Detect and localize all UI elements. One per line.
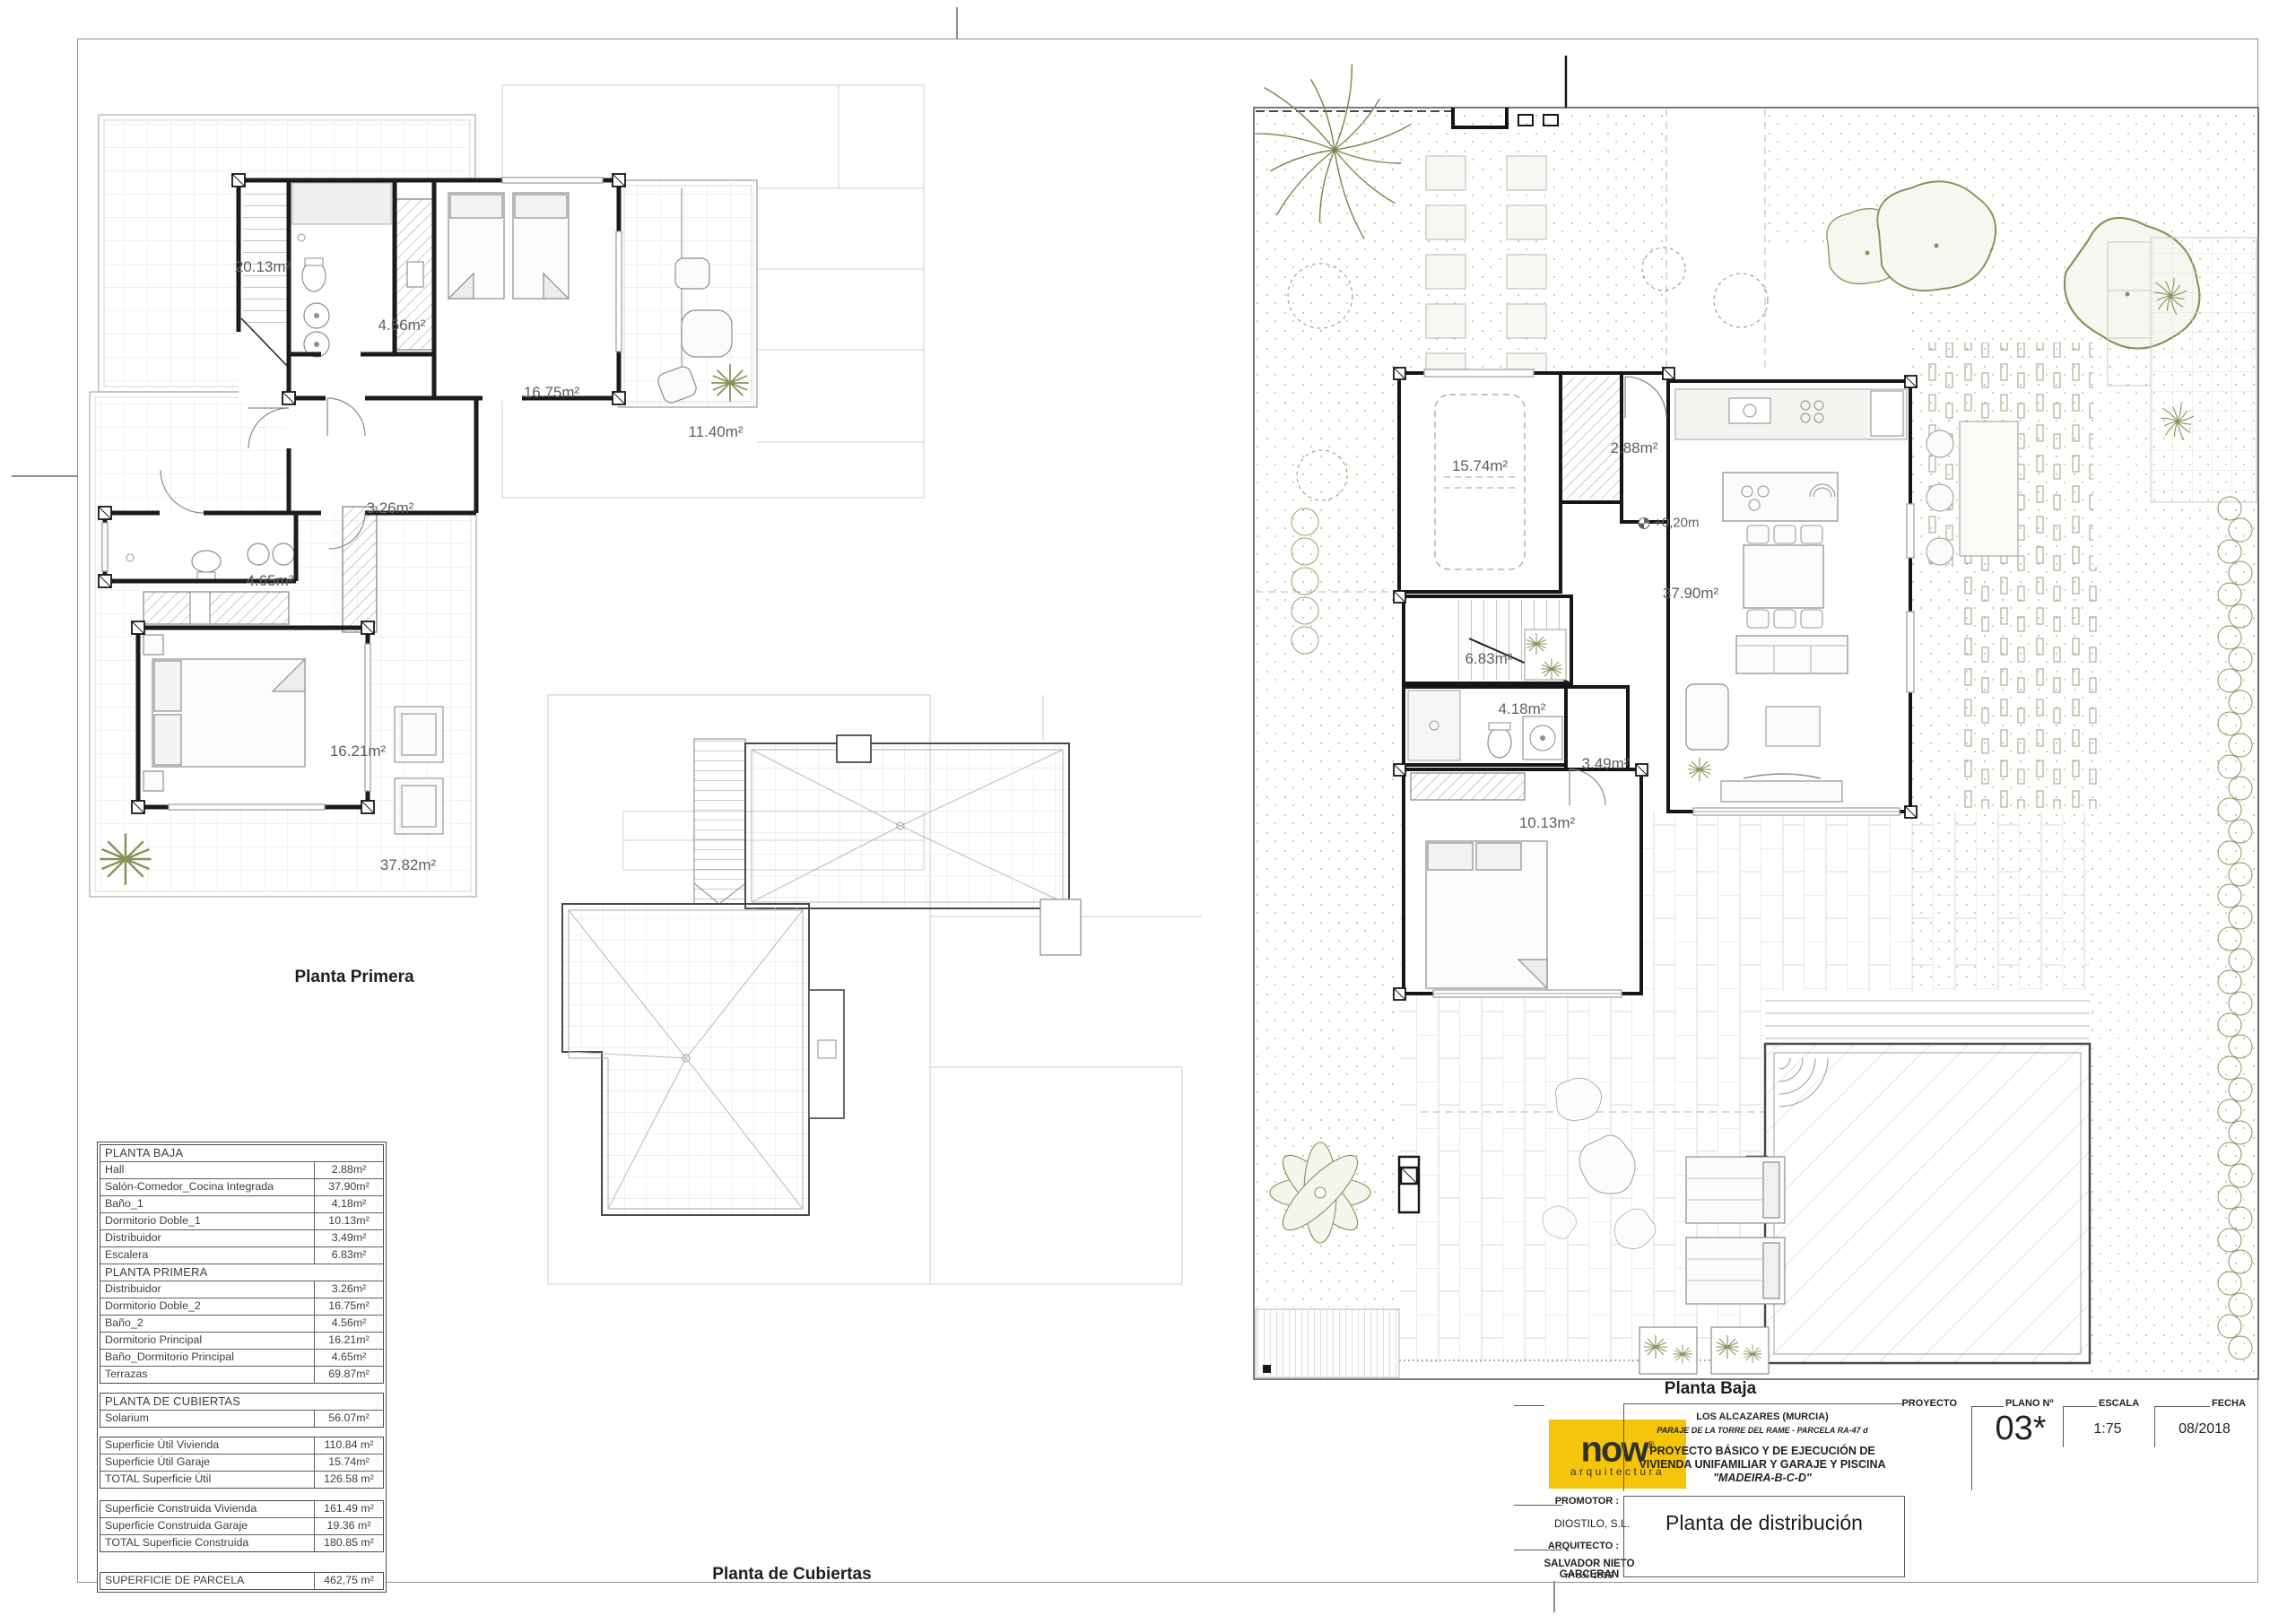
table-row: Dormitorio Doble_216.75m² <box>100 1298 383 1315</box>
promotor-value: DIOSTILO, S.L. <box>1554 1517 1630 1530</box>
table-cell-label: Baño_2 <box>100 1316 314 1332</box>
table-cell-label: Superficie Útil Vivienda <box>100 1437 314 1454</box>
table-cell-label: TOTAL Superficie Útil <box>100 1472 314 1488</box>
proyecto-label: PROYECTO <box>1896 1398 1957 1409</box>
caption-planta-cubiertas: Planta de Cubiertas <box>712 1565 871 1585</box>
area-label: 37.82m² <box>380 856 436 874</box>
area-label: 16.21m² <box>330 743 386 760</box>
arquitecto-label: ARQUITECTO : <box>1516 1541 1619 1551</box>
area-label: 16.75m² <box>524 384 579 402</box>
area-label: 15.74m² <box>1452 457 1508 475</box>
table-cell-value: 462,75 m² <box>314 1573 383 1589</box>
table-cell-value: 2.88m² <box>314 1162 383 1178</box>
promotor-label: PROMOTOR : <box>1516 1496 1619 1507</box>
table-row: Superficie Útil Garaje15.74m² <box>100 1454 383 1471</box>
escala-value: 1:75 <box>2067 1421 2148 1437</box>
table-cell-value: 3.49m² <box>314 1230 383 1246</box>
titleblock-line <box>1623 1403 1624 1491</box>
area-label: 10.13m² <box>1519 814 1575 832</box>
caption-planta-baja: Planta Baja <box>1665 1379 1756 1399</box>
table-cell-value: 126.58 m² <box>314 1472 383 1488</box>
table-cell-value: 6.83m² <box>314 1247 383 1264</box>
area-label: 4.56m² <box>378 317 426 334</box>
table-section-header: PLANTA PRIMERA <box>100 1264 383 1281</box>
table-row: Distribuidor3.49m² <box>100 1229 383 1246</box>
drawing-title: Planta de distribución <box>1624 1511 1904 1535</box>
drawing-title-box: Planta de distribución <box>1623 1496 1905 1577</box>
escala-label: ESCALA <box>2099 1398 2139 1409</box>
area-label: 11.40m² <box>688 423 743 441</box>
area-label: 20.13m² <box>235 258 291 276</box>
table-row: Superficie Útil Vivienda110.84 m² <box>100 1437 383 1454</box>
fold-mark-bottom <box>1553 1581 1555 1612</box>
table-cell-label: Superficie Útil Garaje <box>100 1455 314 1471</box>
table-cell-value: 3.26m² <box>314 1281 383 1298</box>
table-row: TOTAL Superficie Útil126.58 m² <box>100 1471 383 1488</box>
table-cell-label: Hall <box>100 1162 314 1178</box>
table-row: Distribuidor3.26m² <box>100 1281 383 1298</box>
table-cell-label: Distribuidor <box>100 1281 314 1298</box>
titleblock-line <box>1514 1405 1544 1406</box>
area-label: 4.18m² <box>1499 700 1546 718</box>
table-row: SUPERFICIE DE PARCELA462,75 m² <box>100 1573 383 1589</box>
table-box: SUPERFICIE DE PARCELA462,75 m² <box>100 1572 384 1590</box>
titleblock-line <box>1971 1406 1972 1490</box>
fold-mark-top <box>956 7 958 39</box>
table-cell-value: 10.13m² <box>314 1213 383 1229</box>
titleblock-line <box>1971 1406 2004 1407</box>
table-cell-value: 19.36 m² <box>314 1518 383 1534</box>
table-row: TOTAL Superficie Construida180.85 m² <box>100 1534 383 1551</box>
titleblock-line <box>2063 1406 2064 1447</box>
plano-label: PLANO Nº <box>2005 1398 2054 1409</box>
table-row: Baño_24.56m² <box>100 1315 383 1332</box>
area-label: 3.49m² <box>1582 755 1630 773</box>
table-box: PLANTA DE CUBIERTASSolarium56.07m² <box>100 1393 384 1428</box>
area-label: 3.26m² <box>367 499 414 517</box>
titleblock-line <box>1623 1403 1903 1404</box>
location-line1: LOS ALCAZARES (MURCIA) <box>1628 1411 1897 1424</box>
area-label: 6.83m² <box>1465 650 1513 668</box>
table-cell-label: Escalera <box>100 1247 314 1264</box>
drawing-sheet: 20.13m² 4.56m² 16.75m² 11.40m² 3.26m² 4.… <box>0 0 2296 1624</box>
table-section-header: PLANTA DE CUBIERTAS <box>100 1394 383 1410</box>
table-cell-label: Dormitorio Principal <box>100 1333 314 1349</box>
table-box: Superficie Útil Vivienda110.84 m²Superfi… <box>100 1437 384 1489</box>
planta-cubiertas-drawing <box>538 682 1202 1507</box>
table-row: Baño_Dormitorio Principal4.65m² <box>100 1349 383 1366</box>
titleblock-line <box>2154 1406 2155 1447</box>
location-line2: PARAJE DE LA TORRE DEL RAME - PARCELA RA… <box>1628 1424 1897 1437</box>
table-cell-label: TOTAL Superficie Construida <box>100 1535 314 1551</box>
fecha-label: FECHA <box>2212 1398 2246 1409</box>
table-box: PLANTA BAJAHall2.88m²Salón-Comedor_Cocin… <box>100 1144 384 1384</box>
table-row: Dormitorio Doble_110.13m² <box>100 1212 383 1229</box>
area-label: 2.88m² <box>1611 439 1658 457</box>
table-cell-label: Salón-Comedor_Cocina Integrada <box>100 1179 314 1195</box>
caption-planta-primera: Planta Primera <box>294 968 413 987</box>
table-row: Hall2.88m² <box>100 1161 383 1178</box>
table-row: Superficie Construida Garaje19.36 m² <box>100 1517 383 1534</box>
table-cell-value: 16.75m² <box>314 1298 383 1315</box>
table-cell-value: 110.84 m² <box>314 1437 383 1454</box>
area-label: 37.90m² <box>1663 585 1718 603</box>
table-row: Solarium56.07m² <box>100 1410 383 1427</box>
table-cell-value: 16.21m² <box>314 1333 383 1349</box>
table-cell-label: Dormitorio Doble_1 <box>100 1213 314 1229</box>
table-cell-label: Superficie Construida Garaje <box>100 1518 314 1534</box>
table-row: Superficie Construida Vivienda161.49 m² <box>100 1501 383 1517</box>
fecha-value: 08/2018 <box>2160 1421 2249 1437</box>
project-line3: "MADEIRA-B-C-D" <box>1628 1472 1897 1485</box>
table-cell-value: 69.87m² <box>314 1367 383 1383</box>
table-cell-label: Terrazas <box>100 1367 314 1383</box>
table-cell-value: 180.85 m² <box>314 1535 383 1551</box>
table-row: Baño_14.18m² <box>100 1195 383 1212</box>
table-cell-value: 56.07m² <box>314 1411 383 1427</box>
table-cell-label: Baño_Dormitorio Principal <box>100 1350 314 1366</box>
table-row: Dormitorio Principal16.21m² <box>100 1332 383 1349</box>
level-marker: +0,20m <box>1638 516 1699 531</box>
table-cell-value: 4.18m² <box>314 1196 383 1212</box>
titleblock-line <box>2154 1406 2210 1407</box>
project-line1: PROYECTO BÁSICO Y DE EJECUCIÓN DE <box>1628 1445 1897 1458</box>
table-section-header: PLANTA BAJA <box>100 1145 383 1161</box>
table-cell-value: 15.74m² <box>314 1455 383 1471</box>
area-label: 4.65m² <box>247 572 294 590</box>
table-cell-label: SUPERFICIE DE PARCELA <box>100 1573 314 1589</box>
planta-baja-drawing <box>1245 56 2267 1383</box>
table-cell-value: 4.56m² <box>314 1316 383 1332</box>
table-cell-label: Distribuidor <box>100 1230 314 1246</box>
table-cell-value: 4.65m² <box>314 1350 383 1366</box>
table-cell-label: Solarium <box>100 1411 314 1427</box>
table-cell-label: Dormitorio Doble_2 <box>100 1298 314 1315</box>
table-cell-label: Baño_1 <box>100 1196 314 1212</box>
plano-value: 03* <box>1978 1410 2064 1448</box>
table-box: Superficie Construida Vivienda161.49 m²S… <box>100 1500 384 1552</box>
titleblock-line <box>2063 1406 2097 1407</box>
table-row: Salón-Comedor_Cocina Integrada37.90m² <box>100 1178 383 1195</box>
table-cell-value: 161.49 m² <box>314 1501 383 1517</box>
project-line2: VIVIENDA UNIFAMILIAR Y GARAJE Y PISCINA <box>1628 1458 1897 1472</box>
table-cell-value: 37.90m² <box>314 1179 383 1195</box>
table-cell-label: Superficie Construida Vivienda <box>100 1501 314 1517</box>
table-row: Escalera6.83m² <box>100 1246 383 1264</box>
areas-table: PLANTA BAJAHall2.88m²Salón-Comedor_Cocin… <box>97 1142 387 1593</box>
table-row: Terrazas69.87m² <box>100 1366 383 1383</box>
